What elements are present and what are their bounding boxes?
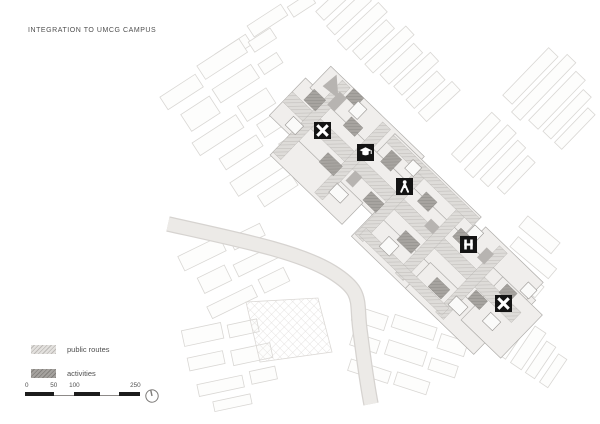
north-indicator-icon	[144, 388, 160, 404]
park-area	[246, 298, 332, 362]
legend-item-activities: activities	[31, 367, 110, 379]
scale-tick: 0	[25, 382, 29, 389]
legend-item-public-routes: public routes	[31, 343, 110, 355]
hospital-marker-icon	[460, 236, 477, 253]
public-routes-swatch-icon	[31, 345, 56, 354]
scale-tick: 250	[130, 382, 141, 389]
education-marker-icon	[357, 144, 374, 161]
activity-person-marker-icon	[396, 178, 413, 195]
scale-tick: 100	[69, 382, 80, 389]
activities-swatch-icon	[31, 369, 56, 378]
scale-tick: 50	[50, 382, 57, 389]
legend-label: activities	[67, 369, 96, 378]
scale-bar-line	[25, 392, 140, 396]
route-node-marker-south-icon	[495, 295, 512, 312]
city-block-cluster	[447, 42, 600, 208]
site-plan-page: INTEGRATION TO UMCG CAMPUS	[0, 0, 600, 424]
route-node-marker-west-icon	[314, 122, 331, 139]
legend-label: public routes	[67, 345, 110, 354]
scale-bar: 0 50 100 250	[25, 382, 140, 397]
